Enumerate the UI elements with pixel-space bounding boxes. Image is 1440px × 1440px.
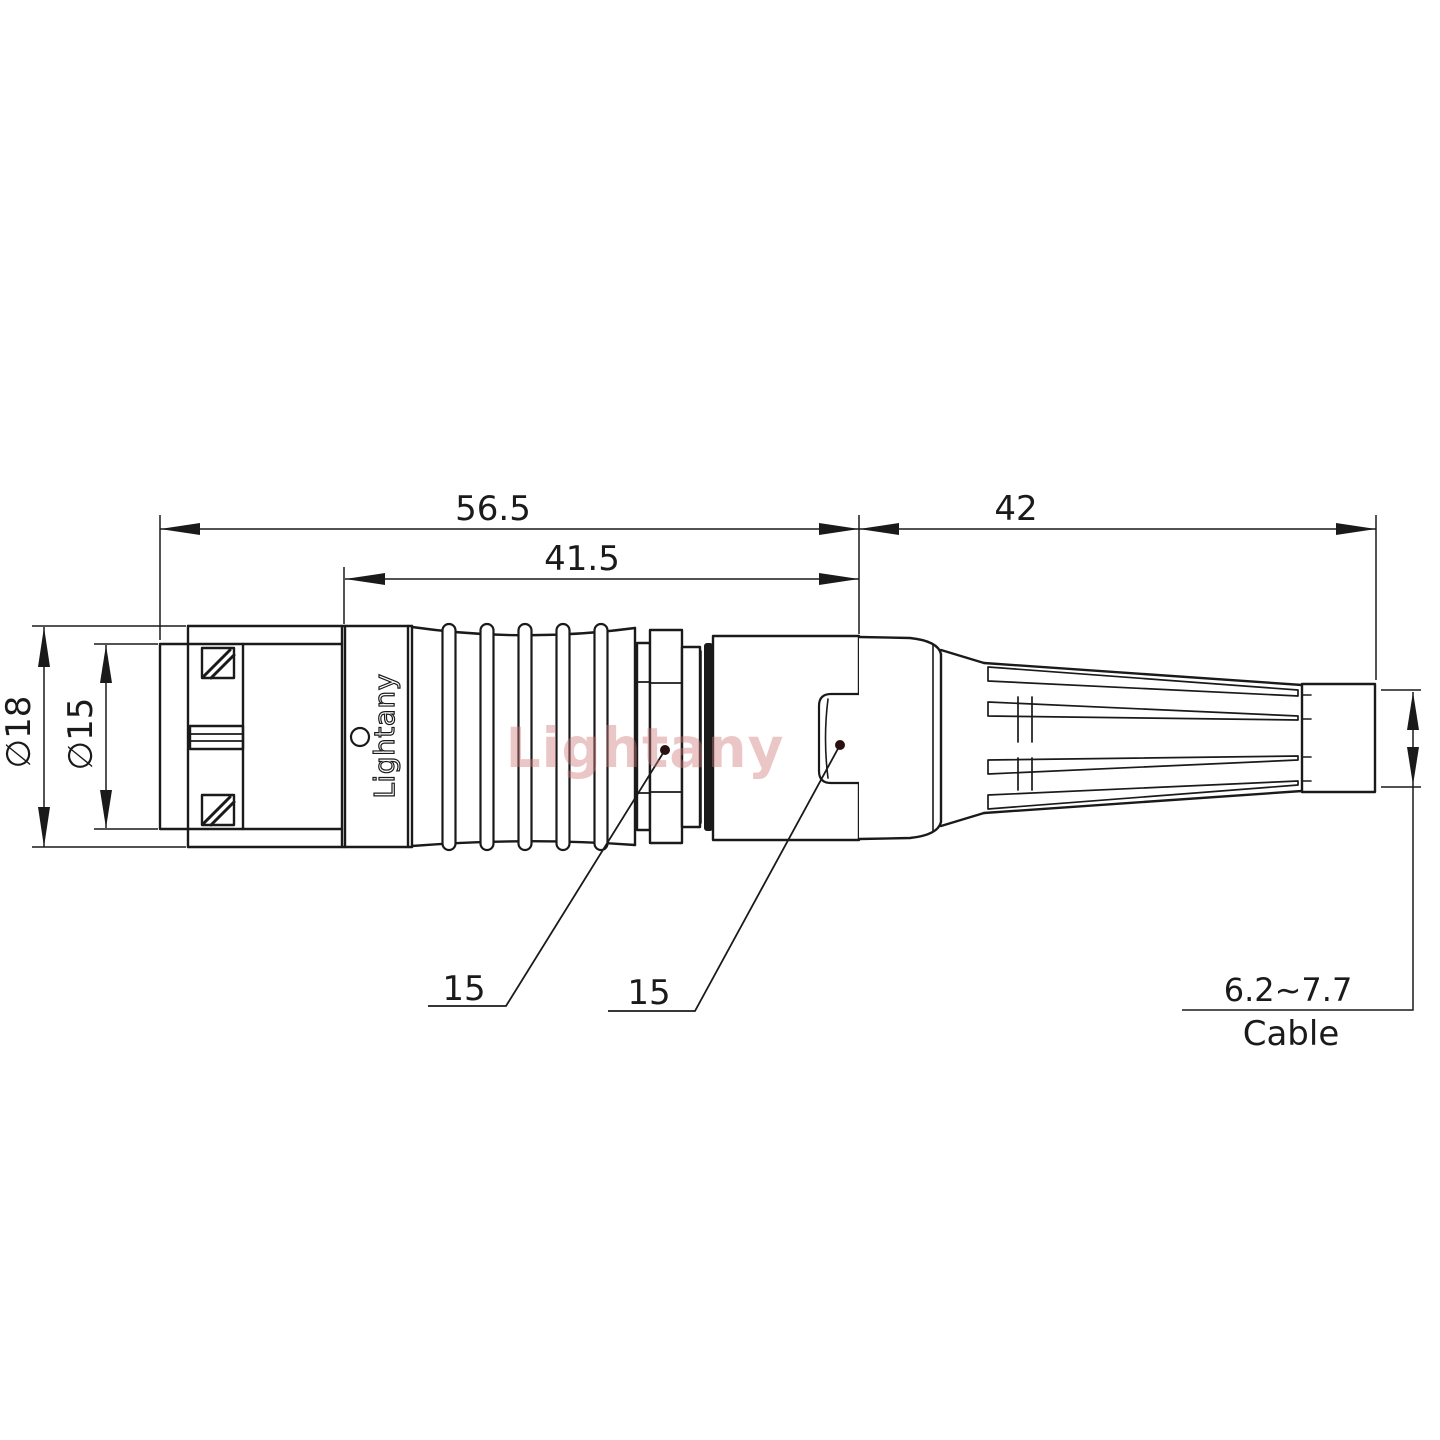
dim-dia18-line xyxy=(32,626,186,847)
technical-drawing-page: 56.5 41.5 42 ∅18 ∅15 15 15 6.2~7.7 Cable… xyxy=(0,0,1440,1440)
connector-dimension-drawing: 56.5 41.5 42 ∅18 ∅15 15 15 6.2~7.7 Cable… xyxy=(0,0,1440,1440)
front-nose xyxy=(160,644,188,829)
dim-41-5-value: 41.5 xyxy=(544,539,620,579)
dim-56-5-value: 56.5 xyxy=(455,489,531,529)
latch-pin-top xyxy=(202,648,234,678)
dim-dia15-value: ∅15 xyxy=(61,698,101,771)
body-brand-marking: Lightany xyxy=(368,673,401,798)
callout-nut-value: 15 xyxy=(442,969,485,1009)
latch-pin-bottom xyxy=(202,795,234,825)
dim-dia18-value: ∅18 xyxy=(0,696,39,769)
callout-shell-value: 15 xyxy=(627,973,670,1013)
back-shell-latch-plate xyxy=(819,694,859,783)
dim-42-value: 42 xyxy=(994,489,1037,529)
cable-exit-block xyxy=(1302,684,1375,792)
body-marking-circle xyxy=(351,728,369,746)
cable-diameter-range: 6.2~7.7 xyxy=(1224,971,1353,1009)
watermark: Lightany xyxy=(506,716,785,780)
boot-slot-3 xyxy=(988,756,1298,774)
latch-center-slot xyxy=(190,726,243,749)
dim-56-5-line xyxy=(160,515,859,640)
leader-nut xyxy=(428,750,665,1006)
front-shell-bore-lines xyxy=(188,644,342,829)
cable-label: Cable xyxy=(1243,1014,1340,1054)
back-shell-cap xyxy=(859,637,941,839)
callout-dot-shell xyxy=(835,740,845,750)
strain-relief-boot xyxy=(941,650,1302,826)
boot-slot-2 xyxy=(988,702,1298,720)
